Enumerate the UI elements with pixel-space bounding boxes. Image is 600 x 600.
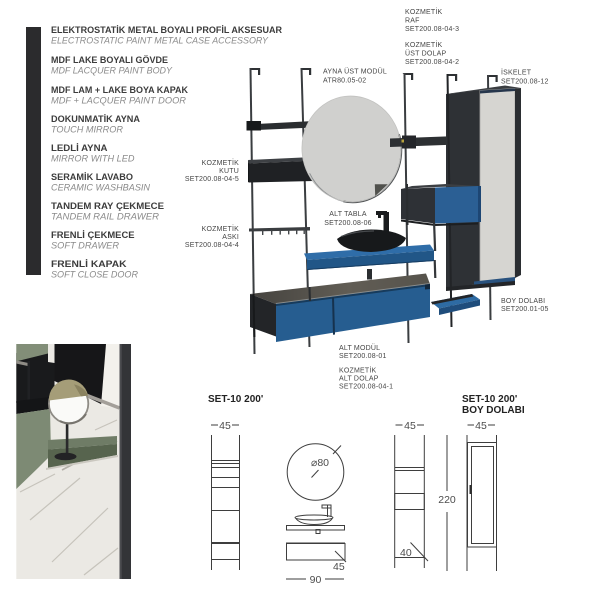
svg-text:TOUCH MIRROR: TOUCH MIRROR	[51, 125, 124, 135]
svg-text:SOFT CLOSE DOOR: SOFT CLOSE DOOR	[51, 270, 139, 280]
svg-text:KOZMETİK: KOZMETİK	[405, 40, 443, 49]
svg-text:ASKI: ASKI	[222, 234, 239, 241]
svg-text:45: 45	[333, 561, 345, 573]
svg-text:⌀80: ⌀80	[311, 457, 329, 469]
svg-text:KOZMETİK: KOZMETİK	[202, 224, 240, 233]
svg-text:ÜST DOLAP: ÜST DOLAP	[405, 50, 446, 58]
svg-text:MDF LACQUER PAINT BODY: MDF LACQUER PAINT BODY	[51, 66, 173, 76]
svg-text:KOZMETİK: KOZMETİK	[339, 366, 377, 375]
svg-text:90: 90	[310, 574, 322, 586]
svg-text:MDF + LACQUER PAINT DOOR: MDF + LACQUER PAINT DOOR	[51, 96, 187, 106]
svg-text:KUTU: KUTU	[219, 168, 239, 175]
svg-text:SET200.08-04-2: SET200.08-04-2	[405, 59, 459, 66]
svg-text:AYNA ÜST MODÜL: AYNA ÜST MODÜL	[323, 68, 387, 76]
svg-text:FRENLİ ÇEKMECE: FRENLİ ÇEKMECE	[51, 230, 135, 240]
svg-text:ALT TABLA: ALT TABLA	[329, 211, 367, 218]
svg-text:CERAMIC WASHBASIN: CERAMIC WASHBASIN	[51, 183, 151, 193]
svg-text:BOY DOLABI: BOY DOLABI	[462, 405, 525, 416]
svg-text:SET200.08-06: SET200.08-06	[324, 220, 372, 227]
svg-text:SET200.08-04-3: SET200.08-04-3	[405, 26, 459, 33]
svg-text:SET200.08-01: SET200.08-01	[339, 353, 387, 360]
svg-text:MDF LAKE BOYALI GÖVDE: MDF LAKE BOYALI GÖVDE	[51, 55, 168, 65]
svg-text:SET200.08-12: SET200.08-12	[501, 79, 549, 86]
svg-text:SET200.08-04-4: SET200.08-04-4	[185, 242, 239, 249]
svg-text:DOKUNMATİK AYNA: DOKUNMATİK AYNA	[51, 114, 141, 124]
svg-text:FRENLİ KAPAK: FRENLİ KAPAK	[51, 259, 127, 269]
svg-text:TANDEM RAY ÇEKMECE: TANDEM RAY ÇEKMECE	[51, 201, 164, 211]
svg-text:220: 220	[438, 494, 456, 506]
svg-text:SOFT DRAWER: SOFT DRAWER	[51, 241, 120, 251]
svg-text:MDF LAM + LAKE BOYA KAPAK: MDF LAM + LAKE BOYA KAPAK	[51, 85, 189, 95]
svg-text:ALT DOLAP: ALT DOLAP	[339, 376, 379, 383]
svg-text:SERAMİK LAVABO: SERAMİK LAVABO	[51, 172, 133, 182]
svg-text:SET200.08-04-1: SET200.08-04-1	[339, 384, 393, 391]
svg-text:LEDLİ AYNA: LEDLİ AYNA	[51, 143, 108, 153]
svg-text:İSKELET: İSKELET	[501, 68, 532, 77]
svg-text:TANDEM RAIL DRAWER: TANDEM RAIL DRAWER	[51, 212, 160, 222]
svg-text:RAF: RAF	[405, 18, 420, 25]
svg-text:ALT MODÜL: ALT MODÜL	[339, 344, 380, 352]
svg-text:MIRROR WITH LED: MIRROR WITH LED	[51, 154, 135, 164]
svg-text:45: 45	[404, 420, 416, 432]
svg-text:KOZMETİK: KOZMETİK	[405, 7, 443, 16]
svg-text:ATR80.05-02: ATR80.05-02	[323, 78, 366, 85]
svg-text:SET-10 200': SET-10 200'	[462, 394, 517, 405]
svg-text:SET-10 200': SET-10 200'	[208, 394, 263, 405]
svg-text:ELEKTROSTATİK METAL BOYALI PRO: ELEKTROSTATİK METAL BOYALI PROFİL AKSESU…	[51, 25, 283, 35]
svg-text:45: 45	[475, 420, 487, 432]
svg-text:KOZMETİK: KOZMETİK	[202, 158, 240, 167]
svg-text:SET200.08-04-5: SET200.08-04-5	[185, 176, 239, 183]
svg-text:40: 40	[400, 547, 412, 559]
svg-text:45: 45	[219, 420, 231, 432]
svg-text:BOY DOLABI: BOY DOLABI	[501, 298, 545, 305]
svg-text:ELECTROSTATIC PAINT METAL CASE: ELECTROSTATIC PAINT METAL CASE ACCESSORY	[51, 36, 269, 46]
svg-text:SET200.01-05: SET200.01-05	[501, 306, 549, 313]
